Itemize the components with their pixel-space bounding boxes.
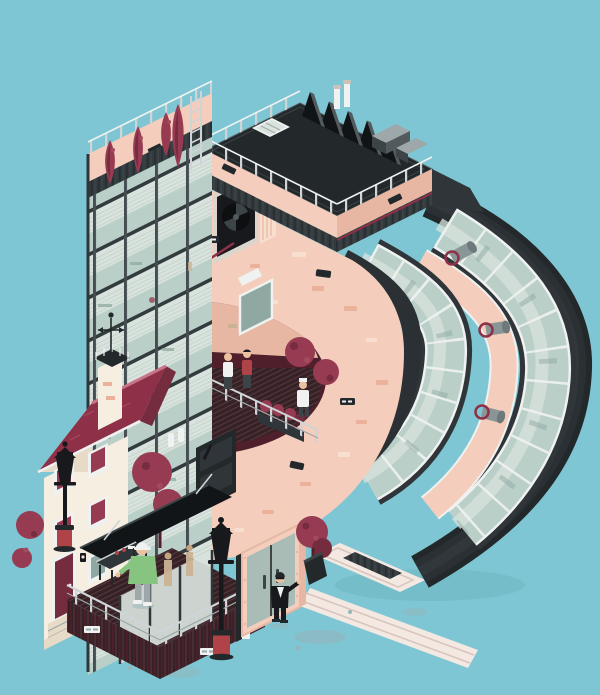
door-lamp	[80, 553, 86, 562]
terrace-person-red-top	[242, 350, 252, 388]
illustration-canvas	[0, 0, 600, 695]
pebble	[296, 646, 301, 651]
pebble	[348, 610, 352, 614]
door-handle	[263, 575, 266, 589]
puddle	[403, 608, 427, 616]
terrace-person-white-shirt	[223, 353, 233, 389]
sill-plant	[228, 324, 237, 328]
puddle	[294, 630, 346, 644]
illustration	[0, 0, 600, 695]
pebble	[128, 666, 132, 670]
